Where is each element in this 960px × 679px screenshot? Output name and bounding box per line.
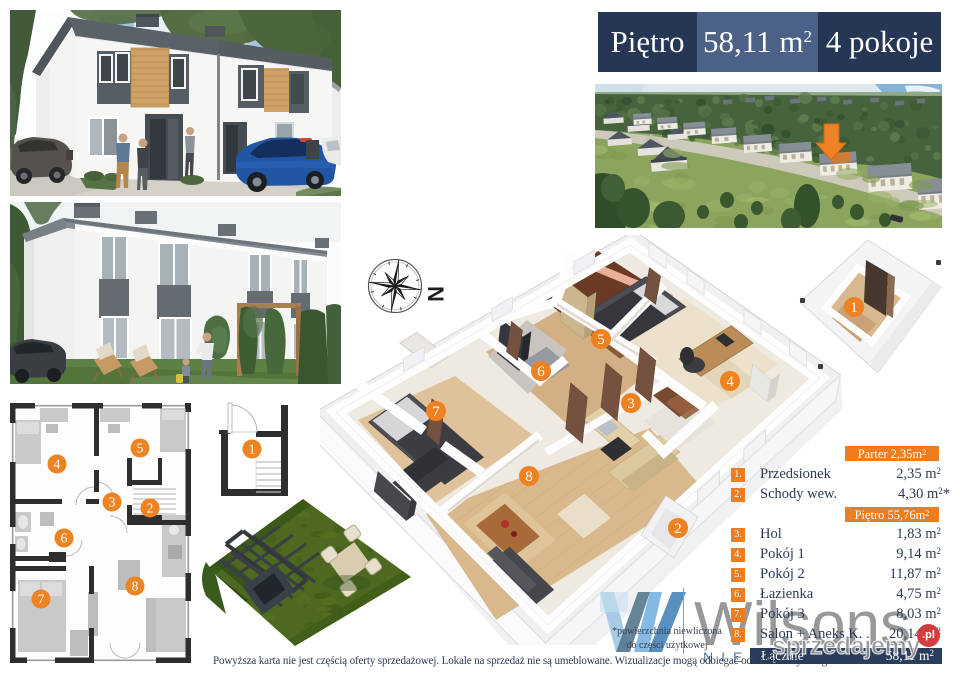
svg-text:7: 7 xyxy=(38,592,45,607)
svg-text:3: 3 xyxy=(627,396,635,412)
svg-text:5: 5 xyxy=(597,332,605,348)
svg-text:3: 3 xyxy=(109,495,116,510)
svg-text:4: 4 xyxy=(726,374,734,390)
svg-text:8: 8 xyxy=(132,579,139,594)
svg-text:1: 1 xyxy=(850,300,858,316)
svg-text:2: 2 xyxy=(147,501,154,516)
svg-text:7: 7 xyxy=(432,404,440,420)
svg-text:2: 2 xyxy=(674,521,682,537)
svg-text:6: 6 xyxy=(61,531,68,546)
svg-text:8: 8 xyxy=(525,469,533,485)
svg-text:5: 5 xyxy=(137,441,144,456)
svg-text:6: 6 xyxy=(537,364,545,380)
svg-text:1: 1 xyxy=(249,442,256,457)
svg-text:4: 4 xyxy=(54,457,61,472)
